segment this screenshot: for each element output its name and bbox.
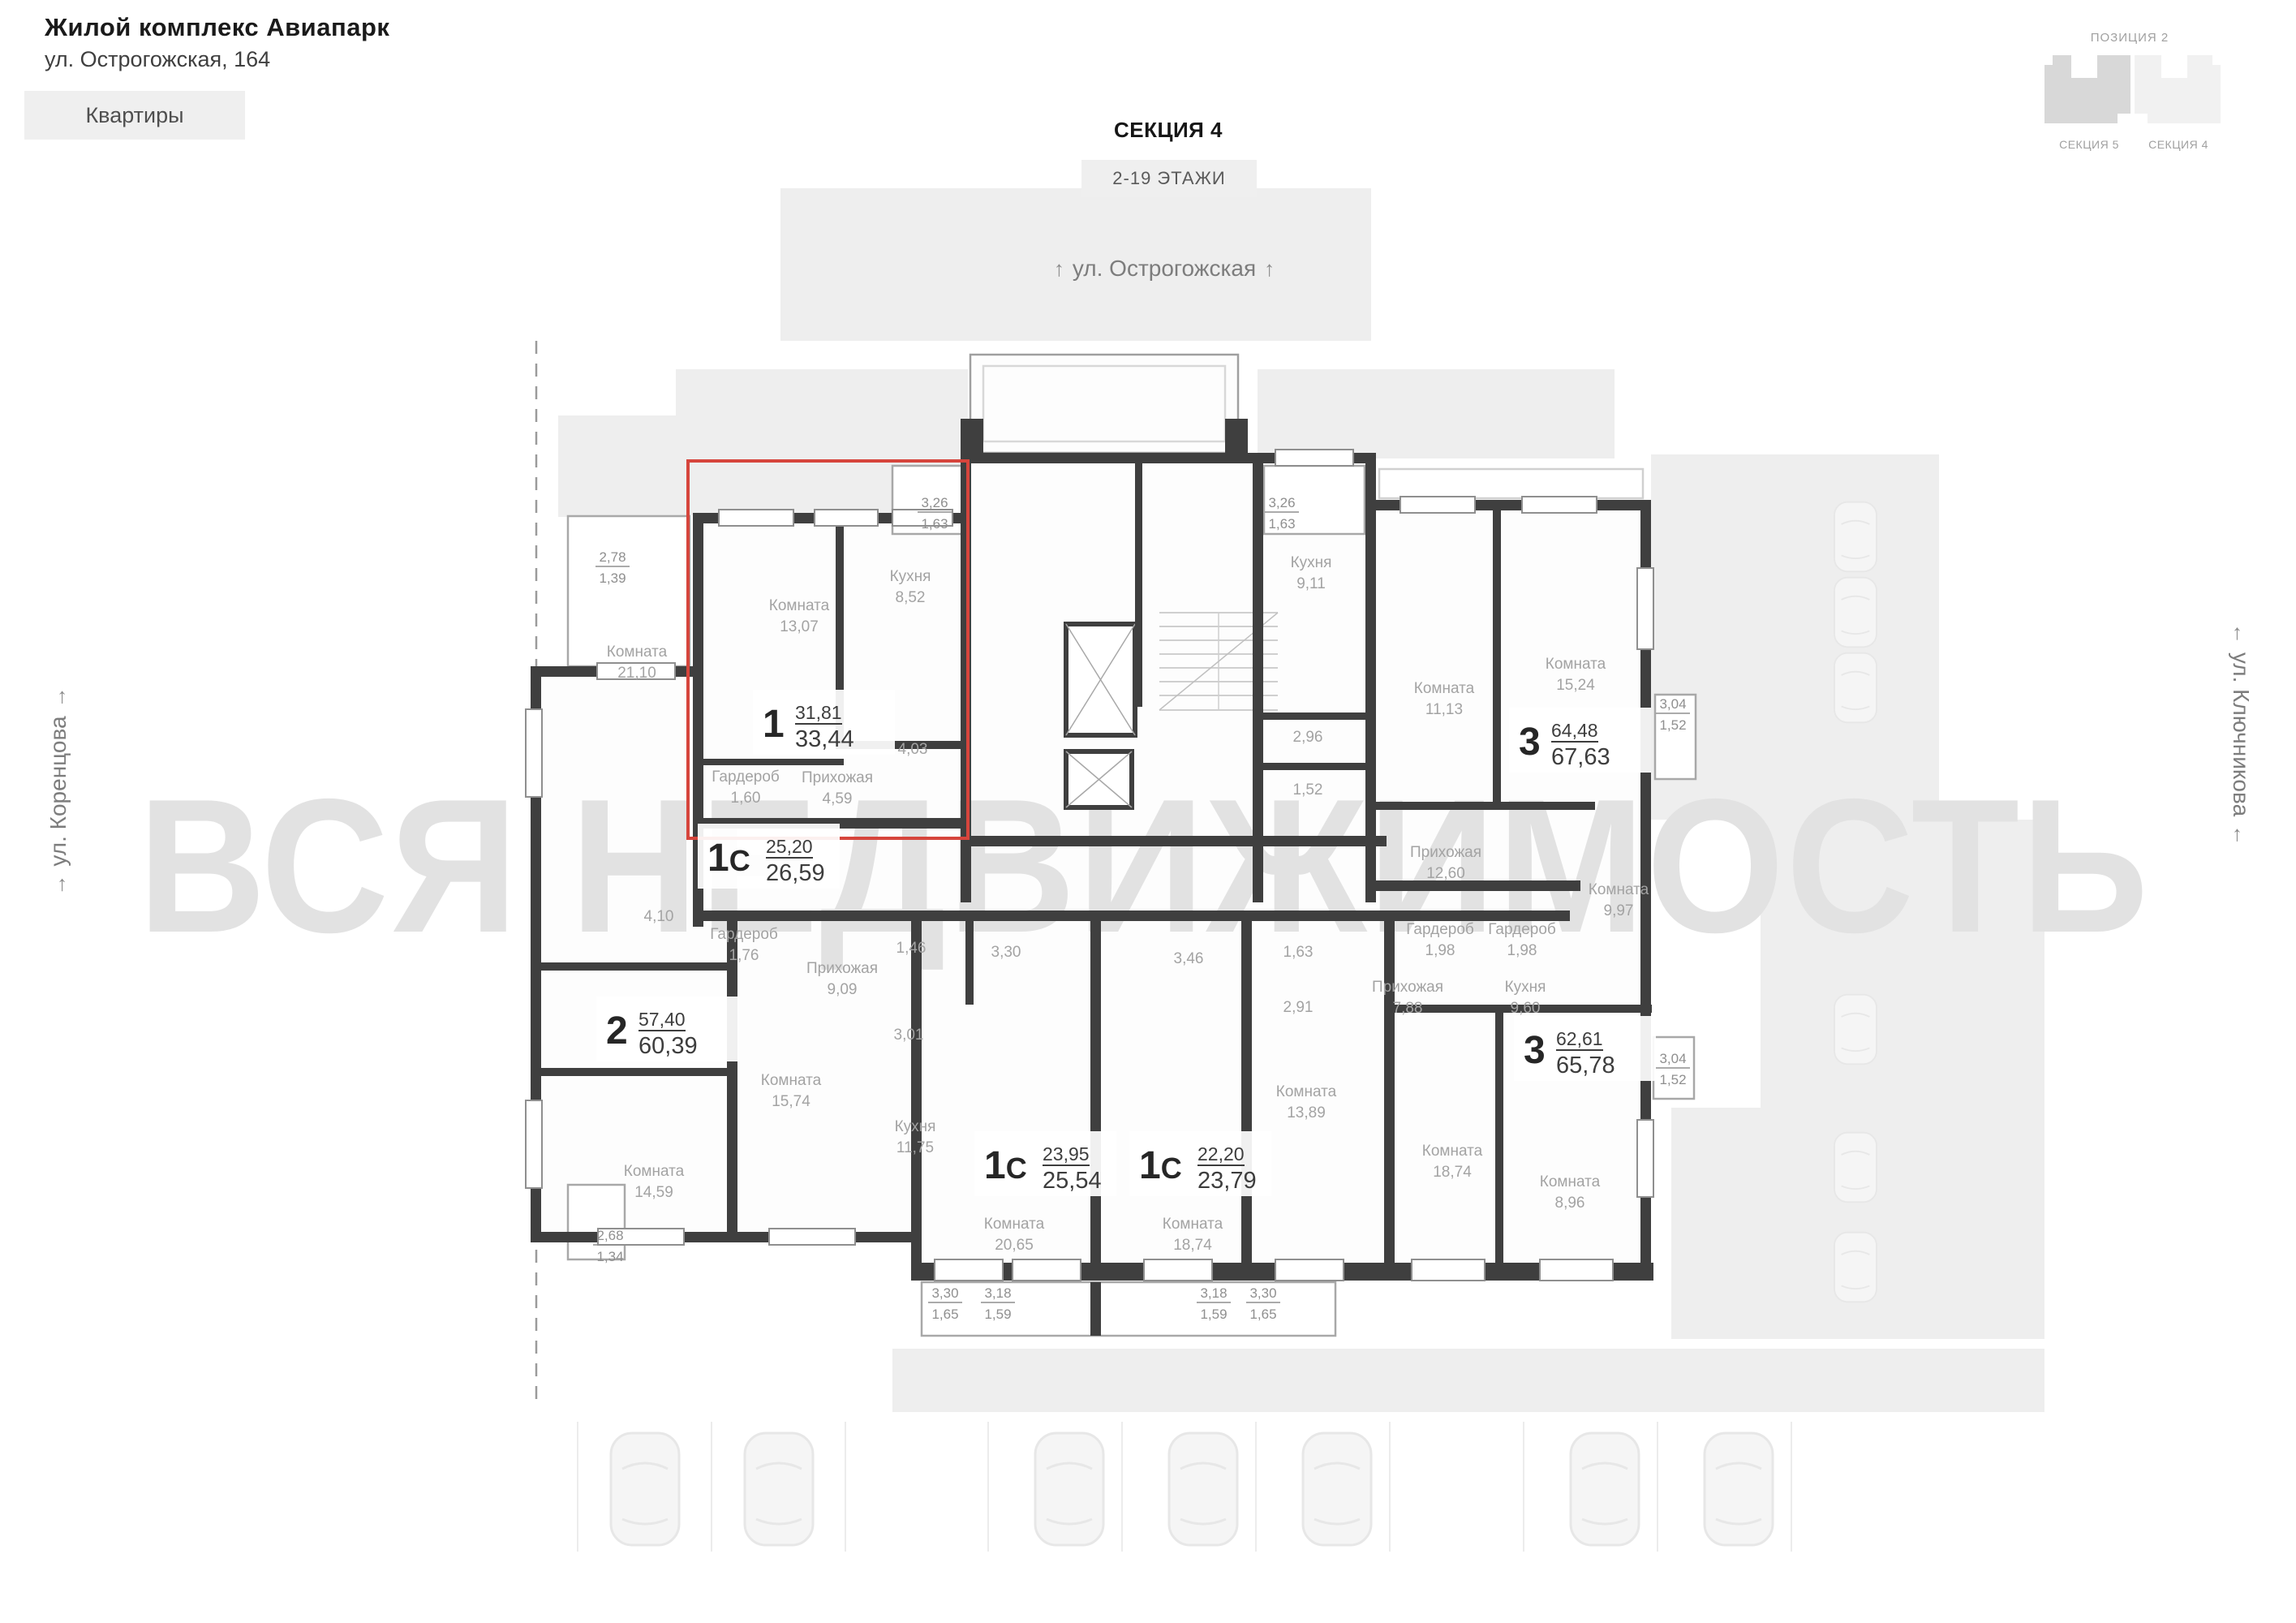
svg-text:Комната: Комната — [1414, 680, 1475, 697]
svg-text:2,96: 2,96 — [1293, 729, 1323, 746]
svg-text:2,91: 2,91 — [1283, 999, 1314, 1016]
svg-text:1,52: 1,52 — [1659, 1072, 1686, 1087]
svg-text:Комната: Комната — [769, 597, 830, 614]
position-section-4-label: СЕКЦИЯ 4 — [2130, 138, 2227, 151]
section-title: СЕКЦИЯ 4 — [1047, 118, 1290, 143]
section-5-icon[interactable] — [2044, 55, 2130, 123]
svg-text:3,30: 3,30 — [931, 1285, 958, 1301]
parking-bottom — [578, 1422, 1791, 1552]
svg-text:Кухня: Кухня — [895, 1118, 936, 1135]
svg-text:33,44: 33,44 — [795, 726, 854, 752]
svg-text:3,30: 3,30 — [1249, 1285, 1276, 1301]
page-address: ул. Острогожская, 164 — [45, 47, 270, 72]
svg-text:13,07: 13,07 — [780, 618, 819, 635]
area-value-label: 3,30 — [991, 944, 1021, 961]
street-label-left: →ул. Коренцова→ — [45, 678, 71, 903]
svg-text:8,96: 8,96 — [1555, 1195, 1585, 1212]
svg-text:Комната: Комната — [624, 1163, 685, 1180]
apartment-label[interactable]: 1С23,9525,54 — [974, 1131, 1116, 1196]
svg-text:1,63: 1,63 — [921, 516, 948, 532]
svg-text:1,60: 1,60 — [731, 790, 761, 807]
svg-text:Комната: Комната — [1540, 1173, 1601, 1190]
position-section-5-label: СЕКЦИЯ 5 — [2040, 138, 2138, 151]
svg-text:1,59: 1,59 — [984, 1307, 1011, 1322]
apartment-label[interactable]: 362,6165,78 — [1514, 1016, 1656, 1081]
svg-text:4,59: 4,59 — [823, 790, 853, 807]
svg-text:4,10: 4,10 — [644, 908, 674, 925]
svg-text:1,63: 1,63 — [1268, 516, 1295, 532]
svg-text:15,74: 15,74 — [772, 1093, 810, 1110]
svg-text:57,40: 57,40 — [638, 1009, 686, 1030]
svg-text:Комната: Комната — [1163, 1216, 1223, 1233]
svg-text:Гардероб: Гардероб — [710, 926, 778, 943]
svg-text:23,79: 23,79 — [1197, 1168, 1257, 1194]
street-name-left: ул. Коренцова — [45, 716, 71, 866]
svg-text:3: 3 — [1519, 721, 1541, 764]
svg-text:9,97: 9,97 — [1604, 902, 1634, 919]
svg-text:1,52: 1,52 — [1293, 781, 1323, 799]
svg-text:15,24: 15,24 — [1556, 677, 1595, 694]
svg-text:1,98: 1,98 — [1425, 942, 1455, 959]
svg-text:Комната: Комната — [1589, 881, 1649, 898]
street-arrow-icon: ← — [2229, 816, 2253, 854]
svg-text:1,65: 1,65 — [1249, 1307, 1276, 1322]
street-arrow-icon: ↑ — [1256, 256, 1283, 281]
svg-text:60,39: 60,39 — [638, 1033, 698, 1059]
svg-text:2,78: 2,78 — [599, 549, 626, 565]
apartment-label[interactable]: 364,4867,63 — [1509, 708, 1651, 773]
street-arrow-icon: ↑ — [1046, 256, 1073, 281]
svg-text:Комната: Комната — [1546, 656, 1606, 673]
apartments-button[interactable]: Квартиры — [24, 91, 245, 140]
svg-text:26,59: 26,59 — [766, 860, 825, 886]
svg-text:21,10: 21,10 — [617, 665, 656, 682]
svg-text:31,81: 31,81 — [795, 702, 842, 723]
svg-text:64,48: 64,48 — [1551, 720, 1598, 741]
street-arrow-icon: → — [46, 867, 71, 904]
apartment-label[interactable]: 257,4060,39 — [596, 997, 738, 1061]
section-4-icon[interactable] — [2135, 55, 2221, 123]
svg-text:4,03: 4,03 — [898, 741, 928, 758]
area-value-label: 2,91 — [1283, 999, 1314, 1016]
svg-text:3,18: 3,18 — [984, 1285, 1011, 1301]
svg-text:25,54: 25,54 — [1043, 1168, 1102, 1194]
svg-text:Кухня: Кухня — [890, 568, 931, 585]
svg-text:Комната: Комната — [607, 644, 668, 661]
area-value-label: 1,52 — [1293, 781, 1323, 799]
street-label-right: ←ул. Ключникова← — [2228, 615, 2254, 854]
svg-text:11,13: 11,13 — [1425, 701, 1463, 718]
svg-text:3,04: 3,04 — [1659, 1051, 1686, 1066]
svg-text:18,74: 18,74 — [1433, 1164, 1472, 1181]
svg-text:Комната: Комната — [984, 1216, 1045, 1233]
area-value-label: 3,46 — [1174, 950, 1204, 967]
street-name-top: ул. Острогожская — [1073, 256, 1256, 281]
floors-badge-label: 2-19 ЭТАЖИ — [1112, 168, 1225, 189]
svg-text:3,01: 3,01 — [894, 1027, 924, 1044]
svg-text:Кухня: Кухня — [1505, 979, 1546, 996]
street-arrow-icon: ← — [2229, 615, 2253, 652]
svg-text:9,09: 9,09 — [828, 981, 858, 998]
svg-text:1,59: 1,59 — [1200, 1307, 1227, 1322]
svg-text:23,95: 23,95 — [1043, 1143, 1090, 1165]
elevators — [1066, 624, 1135, 807]
svg-text:Комната: Комната — [1276, 1083, 1337, 1100]
svg-text:Прихожая: Прихожая — [1410, 844, 1481, 861]
svg-text:62,61: 62,61 — [1556, 1028, 1603, 1049]
position-title: ПОЗИЦИЯ 2 — [2044, 31, 2215, 45]
floor-plan: ВСЯ НЕДВИЖИМОСТЬ — [0, 0, 2296, 1623]
svg-text:Гардероб: Гардероб — [712, 768, 780, 786]
svg-text:1,76: 1,76 — [729, 947, 759, 964]
svg-text:Кухня: Кухня — [1291, 554, 1332, 571]
floors-badge: 2-19 ЭТАЖИ — [1081, 160, 1257, 197]
apartment-label-highlighted[interactable]: 131,8133,44 — [753, 690, 895, 755]
svg-text:1,46: 1,46 — [896, 940, 927, 957]
area-value-label: 4,03 — [898, 741, 928, 758]
page-title: Жилой комплекс Авиапарк — [45, 13, 389, 42]
svg-text:1,63: 1,63 — [1283, 944, 1314, 961]
svg-text:Комната: Комната — [1422, 1143, 1483, 1160]
svg-text:67,63: 67,63 — [1551, 744, 1610, 770]
svg-text:1,39: 1,39 — [599, 570, 626, 586]
svg-text:3: 3 — [1524, 1029, 1546, 1072]
svg-text:3,30: 3,30 — [991, 944, 1021, 961]
watermark: ВСЯ НЕДВИЖИМОСТЬ — [138, 759, 2150, 972]
svg-text:3,46: 3,46 — [1174, 950, 1204, 967]
svg-text:3,18: 3,18 — [1200, 1285, 1227, 1301]
svg-text:3,26: 3,26 — [921, 495, 948, 510]
svg-text:1,65: 1,65 — [931, 1307, 958, 1322]
svg-text:25,20: 25,20 — [766, 836, 813, 857]
apartment-label[interactable]: 1С25,2026,59 — [698, 824, 840, 889]
area-value-label: 3,01 — [894, 1027, 924, 1044]
svg-text:1,34: 1,34 — [596, 1249, 623, 1264]
svg-text:3,26: 3,26 — [1268, 495, 1295, 510]
area-value-label: 4,10 — [644, 908, 674, 925]
street-label-top: ↑ул. Острогожская↑ — [945, 256, 1383, 282]
svg-text:Прихожая: Прихожая — [806, 960, 878, 977]
svg-text:11,75: 11,75 — [896, 1139, 934, 1156]
area-value-label: 1,46 — [896, 940, 927, 957]
street-arrow-icon: → — [46, 678, 71, 716]
svg-text:1,52: 1,52 — [1659, 717, 1686, 733]
svg-text:Прихожая: Прихожая — [1372, 979, 1443, 996]
svg-text:9,11: 9,11 — [1296, 575, 1326, 592]
area-value-label: 1,63 — [1283, 944, 1314, 961]
position-minimap — [2044, 55, 2221, 123]
street-name-right: ул. Ключникова — [2229, 652, 2254, 816]
svg-text:Гардероб: Гардероб — [1406, 921, 1474, 938]
svg-text:1,98: 1,98 — [1507, 942, 1537, 959]
svg-text:12,60: 12,60 — [1426, 865, 1465, 882]
area-value-label: 2,96 — [1293, 729, 1323, 746]
svg-text:1: 1 — [763, 703, 785, 746]
svg-text:Прихожая: Прихожая — [802, 769, 873, 786]
apartments-button-label: Квартиры — [85, 103, 183, 128]
svg-text:18,74: 18,74 — [1173, 1237, 1212, 1254]
svg-text:22,20: 22,20 — [1197, 1143, 1245, 1165]
svg-text:3,04: 3,04 — [1659, 696, 1686, 712]
svg-text:2,68: 2,68 — [596, 1228, 623, 1243]
svg-text:20,65: 20,65 — [995, 1237, 1034, 1254]
svg-text:65,78: 65,78 — [1556, 1053, 1615, 1078]
svg-text:14,59: 14,59 — [634, 1184, 673, 1201]
apartment-label[interactable]: 1С22,2023,79 — [1129, 1131, 1271, 1196]
svg-text:2: 2 — [606, 1010, 628, 1053]
svg-text:Гардероб: Гардероб — [1488, 921, 1556, 938]
svg-text:7,88: 7,88 — [1393, 1000, 1423, 1017]
svg-text:8,52: 8,52 — [896, 589, 926, 606]
svg-text:9,60: 9,60 — [1511, 1000, 1541, 1017]
svg-text:13,89: 13,89 — [1287, 1104, 1326, 1121]
svg-text:Комната: Комната — [761, 1072, 822, 1089]
